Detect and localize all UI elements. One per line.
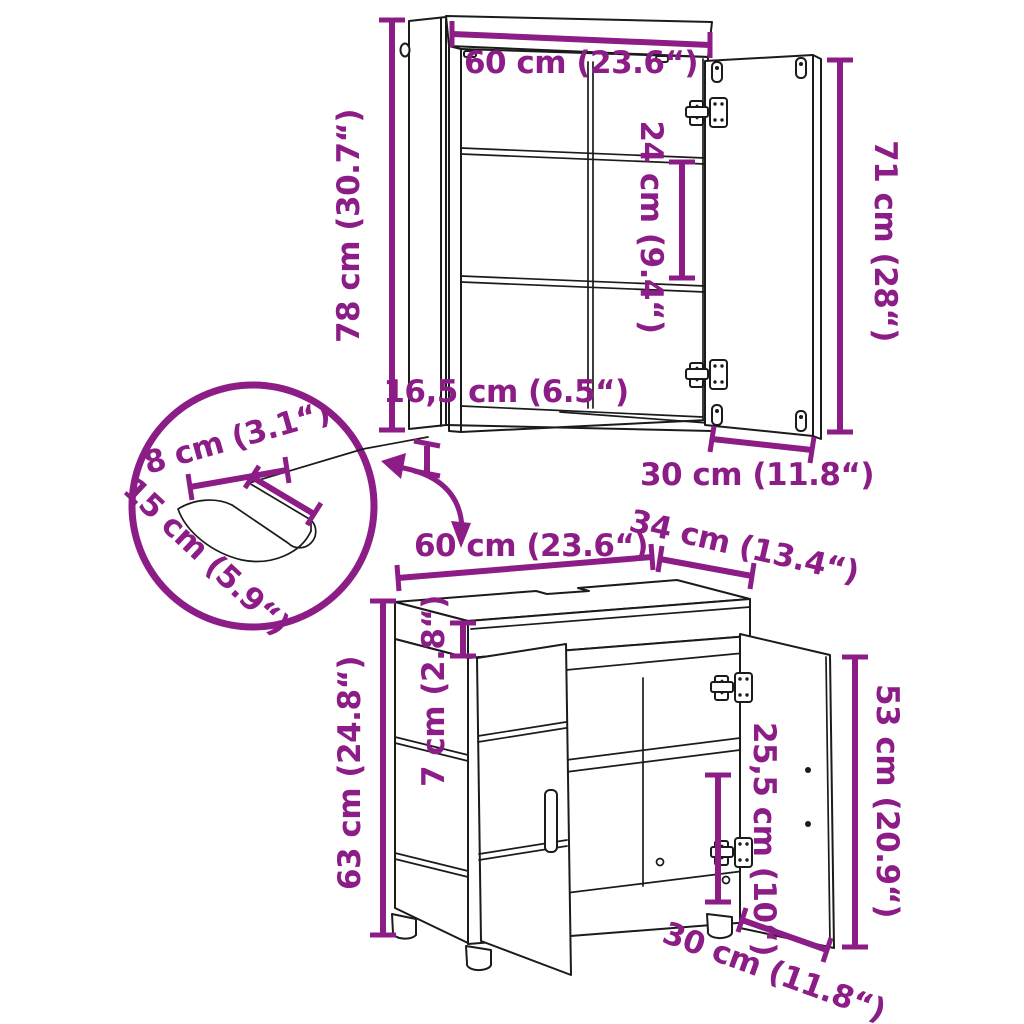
dim-label: 7 cm (2.8“) xyxy=(416,595,452,787)
keyhole-mount-icon xyxy=(712,62,722,82)
dim-sink-width: 60 cm (23.6“) xyxy=(397,528,653,591)
dim-label: 71 cm (28“) xyxy=(867,140,903,342)
sink-foot xyxy=(466,946,491,970)
door-hole xyxy=(805,821,811,827)
dim-label: 60 cm (23.6“) xyxy=(414,528,648,564)
dim-sink-height: 63 cm (24.8“) xyxy=(332,601,396,935)
furniture-dimension-diagram: 60 cm (23.6“) 78 cm (30.7“) 24 cm (9.4“)… xyxy=(0,0,1024,1024)
keyhole-mount-icon xyxy=(796,411,806,431)
door-handle xyxy=(545,790,557,852)
dim-mirror-door-width: 30 cm (11.8“) xyxy=(640,426,874,493)
dim-mirror-door-height: 71 cm (28“) xyxy=(827,60,903,432)
dim-sink-depth: 34 cm (13.4“) xyxy=(626,503,862,591)
dim-label: 78 cm (30.7“) xyxy=(331,109,367,343)
door-knob xyxy=(401,44,410,57)
dim-sink-door-height: 53 cm (20.9“) xyxy=(842,657,905,947)
door-hole xyxy=(805,767,811,773)
dim-label: 53 cm (20.9“) xyxy=(869,684,905,918)
dim-label: 16,5 cm (6.5“) xyxy=(383,374,628,410)
dim-label: 60 cm (23.6“) xyxy=(464,45,698,81)
keyhole-mount-icon xyxy=(712,405,722,425)
dim-mirror-height: 78 cm (30.7“) xyxy=(331,20,405,430)
dim-label: 63 cm (24.8“) xyxy=(332,656,368,890)
dim-label: 24 cm (9.4“) xyxy=(633,120,669,333)
dim-label: 30 cm (11.8“) xyxy=(640,457,874,493)
arrowhead-icon xyxy=(381,453,406,479)
keyhole-mount-icon xyxy=(796,58,806,78)
